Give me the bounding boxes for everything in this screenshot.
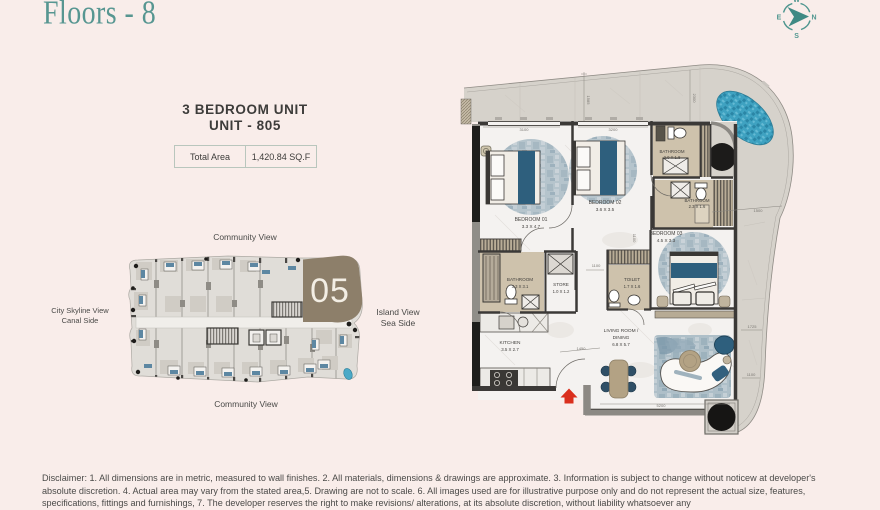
- svg-text:1725: 1725: [748, 324, 758, 329]
- svg-text:1500: 1500: [754, 208, 764, 213]
- svg-text:1585: 1585: [586, 96, 591, 106]
- svg-text:2.0 X 1.8: 2.0 X 1.8: [664, 155, 681, 160]
- svg-text:6.8 X 5.7: 6.8 X 5.7: [612, 342, 630, 347]
- svg-text:N: N: [811, 15, 816, 22]
- svg-text:BATHROOM: BATHROOM: [507, 277, 533, 282]
- svg-text:3.3 X 3.1: 3.3 X 3.1: [512, 284, 529, 289]
- svg-text:BATHROOM: BATHROOM: [684, 198, 709, 203]
- svg-text:4.5 X 3.3: 4.5 X 3.3: [657, 238, 676, 243]
- svg-text:W: W: [793, 0, 800, 4]
- svg-text:1100: 1100: [592, 263, 601, 268]
- svg-text:TOILET: TOILET: [624, 277, 640, 282]
- svg-text:3.5 X 2.7: 3.5 X 2.7: [501, 347, 519, 352]
- svg-text:3.3 X 4.7: 3.3 X 4.7: [522, 224, 541, 229]
- svg-text:STORE: STORE: [553, 282, 569, 287]
- svg-text:BATHROOM: BATHROOM: [659, 149, 684, 154]
- svg-text:1100: 1100: [747, 372, 756, 377]
- svg-text:1450: 1450: [577, 346, 587, 351]
- svg-text:S: S: [794, 33, 799, 40]
- svg-text:LIVING ROOM /: LIVING ROOM /: [604, 328, 639, 334]
- svg-text:DINING: DINING: [613, 335, 630, 341]
- svg-text:1100: 1100: [632, 234, 637, 243]
- svg-text:2.3 X 1.6: 2.3 X 1.6: [689, 204, 706, 209]
- svg-text:BEDROOM 01: BEDROOM 01: [515, 217, 548, 223]
- svg-text:3.6 X 3.5: 3.6 X 3.5: [596, 207, 615, 212]
- svg-text:3200: 3200: [609, 127, 619, 132]
- svg-text:2300: 2300: [692, 94, 697, 104]
- svg-text:KITCHEN: KITCHEN: [499, 340, 521, 346]
- svg-text:BEDROOM 03: BEDROOM 03: [650, 231, 683, 237]
- svg-text:1.0 X 1.2: 1.0 X 1.2: [553, 289, 570, 294]
- svg-text:05: 05: [310, 272, 350, 310]
- svg-text:5200: 5200: [657, 403, 667, 408]
- svg-text:BEDROOM 02: BEDROOM 02: [589, 200, 622, 206]
- svg-text:E: E: [777, 15, 782, 22]
- svg-text:3100: 3100: [520, 127, 530, 132]
- svg-text:1.7 X 1.6: 1.7 X 1.6: [624, 284, 641, 289]
